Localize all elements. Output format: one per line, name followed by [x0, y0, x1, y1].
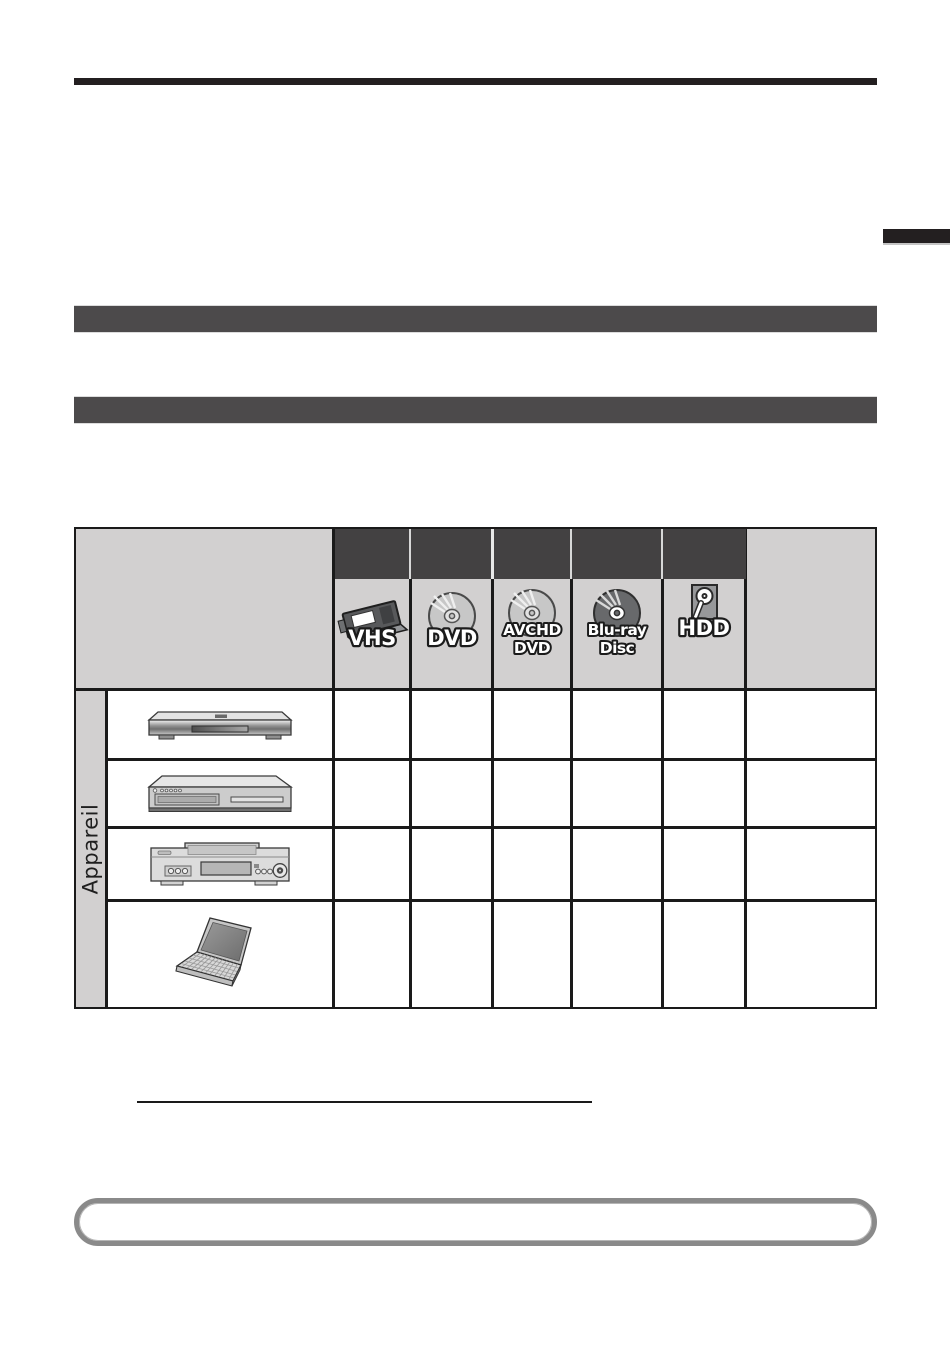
table-cell — [335, 691, 409, 758]
header-group-bar-left — [335, 529, 491, 579]
table-cell — [747, 829, 875, 899]
row-axis-strip: Appareil — [76, 691, 105, 1007]
footnote-underline — [137, 1101, 592, 1103]
table-cell — [747, 691, 875, 758]
device-cell-laptop — [108, 902, 332, 1007]
table-cell — [747, 902, 875, 1007]
table-cell — [335, 761, 409, 826]
note-box — [74, 1198, 877, 1246]
table-header-corner-cell — [76, 529, 332, 688]
avchd-label-line1: AVCHD — [503, 621, 561, 639]
table-cell — [335, 829, 409, 899]
table-cell — [335, 902, 409, 1007]
dvd-disc-icon: DVD — [415, 579, 489, 665]
group-bar-divider — [570, 529, 572, 579]
table-cell — [494, 691, 570, 758]
table-cell — [494, 829, 570, 899]
vhs-cassette-icon: VHS — [335, 579, 409, 665]
section-heading-bar-1 — [74, 305, 877, 333]
table-cell — [412, 902, 491, 1007]
section-heading-bar-2 — [74, 396, 877, 424]
table-cell — [664, 761, 744, 826]
table-cell — [494, 902, 570, 1007]
blu-ray-disc-icon: Blu-ray Disc — [573, 579, 661, 665]
dvd-recorder-image — [145, 773, 295, 815]
table-cell — [412, 829, 491, 899]
table-cell — [573, 902, 661, 1007]
vhs-label: VHS — [348, 626, 395, 650]
table-cell — [494, 761, 570, 826]
page-edge-tab — [883, 229, 950, 245]
header-group-bar-right — [494, 529, 746, 579]
top-rule — [74, 78, 877, 85]
table-cell — [412, 691, 491, 758]
vhs-deck-image — [145, 840, 295, 888]
table-cell — [664, 691, 744, 758]
media-compatibility-table: VHS DVD — [74, 527, 877, 1009]
laptop-image — [170, 915, 270, 995]
table-cell — [747, 761, 875, 826]
table-cell — [664, 829, 744, 899]
device-cell-vhs-deck — [108, 829, 332, 899]
hdd-label: HDD — [679, 616, 730, 640]
group-bar-divider — [661, 529, 663, 579]
avchd-disc-icon: AVCHD DVD — [494, 579, 570, 665]
table-cell — [573, 691, 661, 758]
table-cell — [573, 761, 661, 826]
avchd-label-line2: DVD — [514, 639, 551, 657]
table-cell — [573, 829, 661, 899]
bluray-label-line1: Blu-ray — [588, 621, 647, 639]
blu-ray-player-image — [145, 707, 295, 743]
device-cell-dvd-recorder — [108, 761, 332, 826]
group-bar-divider — [409, 529, 411, 579]
bluray-label-line2: Disc — [600, 639, 635, 657]
table-header-last-column-cell — [747, 529, 875, 688]
hdd-drive-icon: HDD — [664, 579, 744, 665]
row-axis-label: Appareil — [79, 804, 103, 895]
table-cell — [412, 761, 491, 826]
manual-page: VHS DVD — [0, 0, 950, 1351]
dvd-label: DVD — [427, 626, 477, 650]
table-cell — [664, 902, 744, 1007]
device-cell-blu-ray-player — [108, 691, 332, 758]
